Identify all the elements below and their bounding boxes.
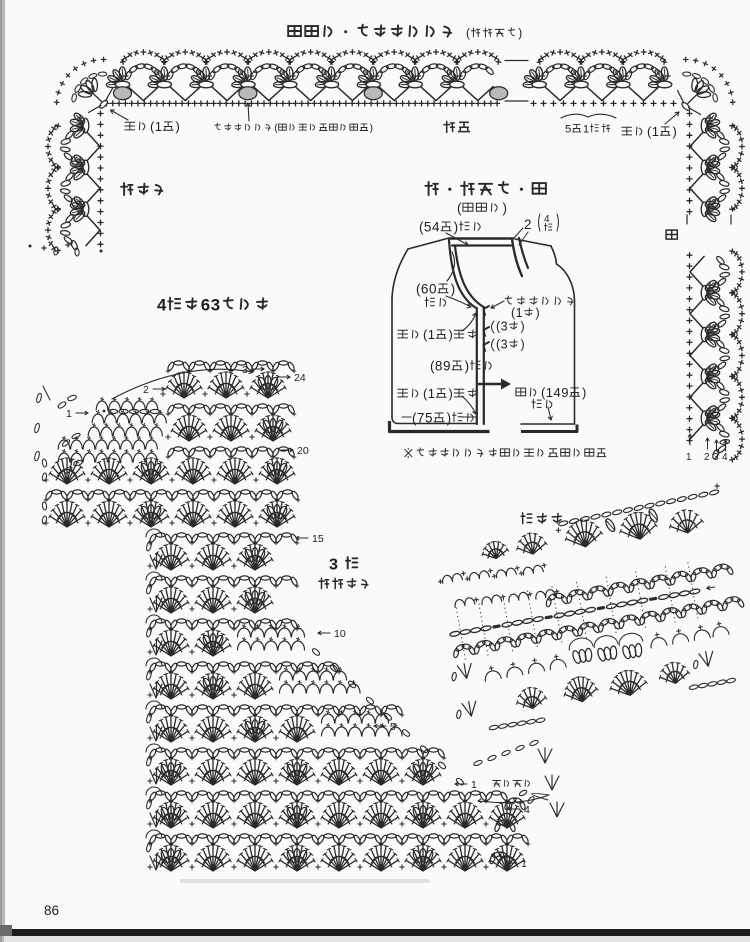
svg-text:1: 1 (546, 385, 553, 400)
svg-text:5: 5 (424, 220, 432, 235)
svg-text:10: 10 (334, 628, 346, 640)
svg-text:): ) (536, 306, 540, 320)
svg-text:6: 6 (421, 282, 429, 297)
svg-text:(: ( (274, 123, 278, 134)
svg-text:6: 6 (201, 296, 210, 315)
svg-text:2: 2 (524, 217, 532, 232)
svg-text:7: 7 (417, 411, 425, 426)
svg-text:0: 0 (429, 282, 437, 297)
svg-text:): ) (176, 119, 180, 134)
svg-text:3: 3 (329, 555, 338, 573)
svg-text:3: 3 (501, 338, 508, 352)
svg-text:): ) (521, 320, 525, 334)
svg-text:9: 9 (443, 359, 451, 374)
svg-text:4: 4 (554, 385, 561, 400)
svg-text:): ) (521, 338, 525, 352)
svg-text:24: 24 (294, 372, 306, 384)
svg-text:): ) (451, 282, 456, 297)
svg-text:4: 4 (722, 452, 728, 463)
svg-text:2: 2 (143, 384, 149, 396)
svg-text:3: 3 (713, 452, 719, 463)
svg-text:8: 8 (435, 359, 443, 374)
svg-text:): ) (449, 386, 453, 401)
svg-text:15: 15 (312, 533, 324, 545)
svg-text:(: ( (466, 26, 470, 40)
svg-text:3: 3 (242, 364, 248, 376)
svg-text:): ) (518, 26, 522, 40)
svg-text:4: 4 (432, 220, 440, 235)
svg-text:4: 4 (157, 296, 167, 315)
svg-text:5: 5 (390, 721, 396, 733)
svg-text:): ) (447, 411, 452, 426)
svg-text:9: 9 (561, 385, 568, 400)
svg-text:): ) (465, 359, 470, 374)
svg-text:4: 4 (544, 214, 550, 225)
svg-text:3: 3 (501, 320, 508, 334)
svg-text:1: 1 (428, 386, 435, 401)
svg-text:): ) (582, 385, 586, 400)
svg-text:(: ( (457, 201, 462, 216)
svg-text:1: 1 (471, 779, 477, 791)
svg-text:5: 5 (425, 411, 433, 426)
svg-text:1: 1 (521, 858, 527, 870)
svg-text:5: 5 (565, 124, 571, 136)
svg-text:1: 1 (428, 327, 435, 342)
svg-text:2: 2 (704, 452, 710, 463)
svg-text:1: 1 (155, 119, 162, 134)
svg-text:): ) (454, 220, 459, 235)
svg-text:1: 1 (516, 306, 523, 320)
svg-text:): ) (673, 124, 677, 139)
svg-text:3: 3 (211, 296, 220, 315)
svg-text:): ) (503, 201, 508, 216)
svg-text:4: 4 (524, 804, 530, 816)
svg-text:1: 1 (66, 408, 72, 420)
svg-text:): ) (449, 327, 453, 342)
svg-text:1: 1 (583, 124, 589, 136)
svg-text:1: 1 (652, 124, 659, 139)
svg-text:1: 1 (686, 452, 692, 463)
svg-text:20: 20 (297, 445, 309, 457)
svg-text:86: 86 (44, 903, 59, 918)
svg-text:): ) (370, 123, 373, 134)
